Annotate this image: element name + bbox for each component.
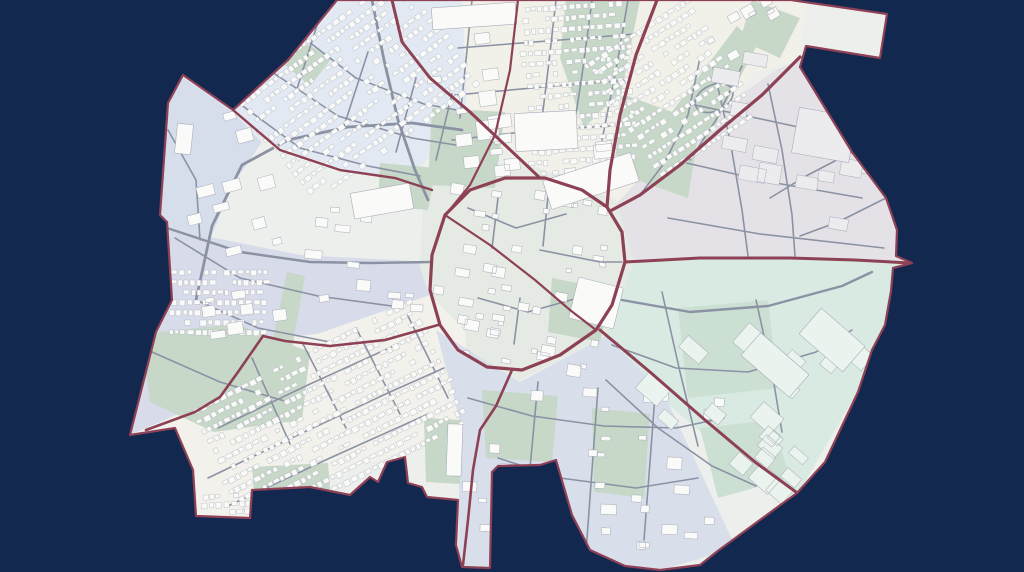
landmark-building-1 bbox=[446, 424, 463, 476]
city-map bbox=[0, 0, 1024, 572]
landmark-building-2 bbox=[514, 110, 578, 151]
map-viewport bbox=[0, 0, 1024, 572]
landmark-building-6 bbox=[174, 123, 193, 155]
